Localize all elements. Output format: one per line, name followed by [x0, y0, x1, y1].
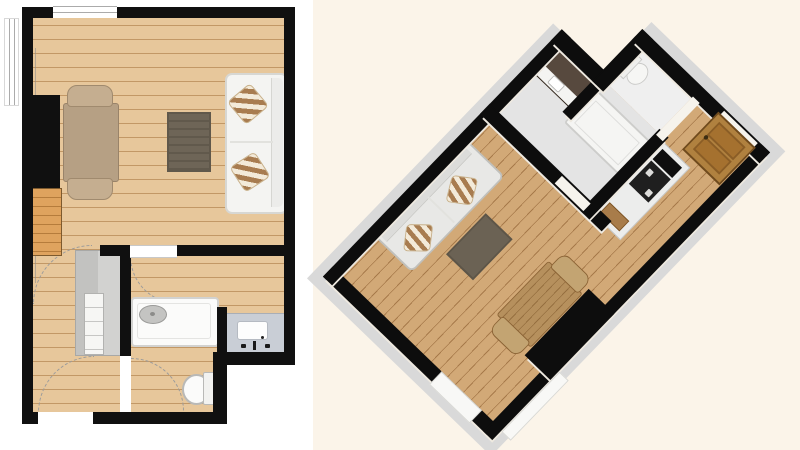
- door-gap-entrance: [38, 412, 93, 424]
- window-top: [53, 1, 117, 18]
- sink-vanity: [227, 313, 284, 354]
- chair: [67, 178, 113, 200]
- kitchen-unit: [75, 250, 122, 356]
- wall-left-pillar: [22, 95, 60, 188]
- wall-left: [22, 7, 33, 424]
- rug: [167, 112, 211, 172]
- sofa-seat-divider: [230, 141, 273, 143]
- burner: [644, 189, 653, 198]
- sofa: [225, 73, 288, 214]
- bathtub-drain: [139, 305, 167, 324]
- dining-table: [63, 103, 119, 182]
- sofa-cushion: [229, 151, 270, 192]
- drain-hole: [150, 312, 155, 316]
- sofa-cushion-3d: [445, 175, 478, 206]
- sofa-cushion: [227, 83, 269, 125]
- floorplan-canvas: [0, 0, 800, 450]
- kitchen-shelves: [84, 293, 104, 355]
- faucet-knob: [265, 344, 270, 348]
- window-left: [4, 18, 19, 106]
- door-gap-wc: [120, 356, 131, 412]
- wall-bath-bottom: [217, 352, 295, 365]
- sink-drain-dot: [261, 336, 264, 339]
- floor-plan-2d: [22, 7, 295, 424]
- sofa-cushion-3d: [403, 224, 433, 251]
- faucet: [253, 341, 256, 350]
- wall-hall-bath: [120, 245, 131, 361]
- bathtub: [131, 297, 219, 347]
- exterior-notch-mask: [227, 365, 297, 427]
- door-gap-bathroom: [130, 245, 177, 258]
- sink-basin: [237, 321, 268, 340]
- wall-right: [284, 7, 295, 365]
- burner: [645, 168, 654, 177]
- chair: [67, 85, 113, 107]
- faucet-knob: [241, 344, 246, 348]
